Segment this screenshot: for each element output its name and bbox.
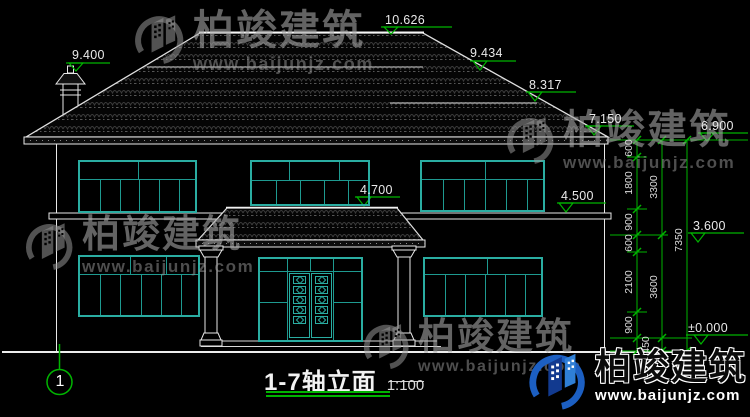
elevation-label-floor2-level: 3.600 — [693, 219, 726, 233]
window-2f-right — [420, 160, 545, 212]
elevation-label-eave-right: 7.150 — [589, 112, 622, 126]
elevation-label-upper-slope: 9.434 — [470, 46, 503, 60]
ground-line — [2, 341, 700, 352]
title-scale: 1:100 — [387, 377, 425, 394]
elevation-label-ridge: 10.626 — [385, 13, 425, 27]
window-1f-left — [78, 255, 200, 317]
porch-column-left — [199, 246, 223, 346]
main-roof — [24, 33, 608, 145]
elevation-drawing-canvas: 10.626 9.400 9.434 8.317 7.150 6.900 4.7… — [0, 0, 750, 417]
elevation-label-ground: ±0.000 — [688, 321, 728, 335]
title-underline — [266, 391, 390, 393]
dim-label-450: 450 — [640, 315, 652, 375]
window-2f-center — [250, 160, 370, 206]
elevation-label-canopy: 4.700 — [360, 183, 393, 197]
door-leaf-left — [289, 273, 310, 338]
porch-canopy — [196, 208, 425, 248]
dim-label-3600: 3600 — [648, 257, 660, 317]
elevation-label-chimney: 9.400 — [72, 48, 105, 62]
dim-label-3300: 3300 — [648, 157, 660, 217]
title-underline-2 — [266, 395, 390, 397]
window-1f-right — [423, 257, 543, 317]
elevation-label-wing-ridge: 8.317 — [529, 78, 562, 92]
elevation-label-wall-top: 6.900 — [701, 119, 734, 133]
door-leaf-right — [311, 273, 332, 338]
entrance-door — [258, 257, 363, 342]
dim-label-900b: 900 — [623, 295, 635, 355]
window-2f-left — [78, 160, 197, 213]
axis-bubble-label: 1 — [53, 373, 67, 391]
elevation-label-floor2-band: 4.500 — [561, 189, 594, 203]
dim-label-7350: 7350 — [673, 210, 685, 270]
porch-column-right — [392, 246, 416, 346]
